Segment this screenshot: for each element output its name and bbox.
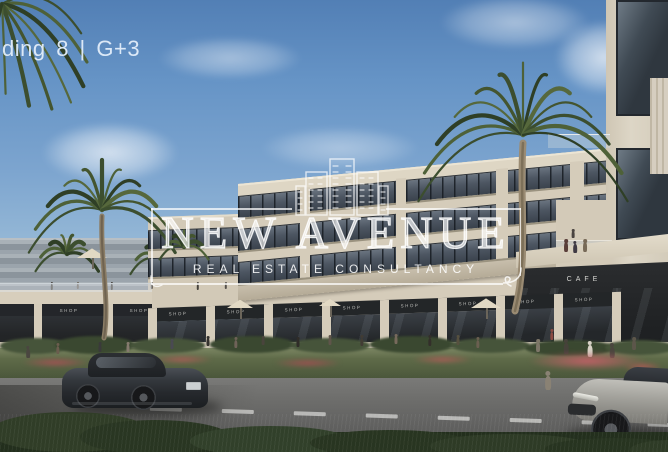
person-body bbox=[476, 340, 479, 348]
person-body bbox=[360, 338, 363, 346]
cloud bbox=[130, 28, 330, 88]
palm-frond-corner bbox=[0, 0, 130, 140]
coupe-rear-wheel bbox=[131, 385, 156, 410]
hedge-texture bbox=[0, 414, 668, 452]
person-body bbox=[206, 338, 209, 346]
shrub bbox=[370, 336, 455, 353]
person-figure bbox=[328, 335, 332, 345]
person-body bbox=[632, 340, 636, 350]
person-figure bbox=[476, 337, 480, 348]
person-figure bbox=[360, 335, 364, 346]
person-figure bbox=[261, 336, 264, 345]
person-figure bbox=[456, 335, 460, 345]
person-figure bbox=[234, 337, 238, 348]
person-body bbox=[225, 284, 227, 289]
facade-pier bbox=[396, 178, 406, 269]
person-body bbox=[394, 336, 397, 344]
person-body bbox=[428, 338, 431, 346]
person-figure bbox=[550, 329, 554, 340]
coupe-cabin bbox=[88, 353, 166, 377]
exterior-building-render: CAFE SHOPSHOP SHOPSHOPSHOPSHOPSHOPSHOPSH… bbox=[0, 0, 668, 452]
watermark-flourish bbox=[495, 266, 529, 292]
person-body bbox=[545, 376, 551, 390]
person-figure bbox=[296, 337, 300, 347]
license-plate bbox=[186, 382, 201, 390]
person-figure bbox=[544, 371, 551, 390]
dark-sports-coupe bbox=[60, 352, 210, 416]
palm-tree-left bbox=[20, 140, 190, 350]
person-figure bbox=[206, 336, 210, 346]
person-body bbox=[296, 339, 299, 347]
person-body bbox=[456, 337, 459, 345]
coupe-window bbox=[96, 357, 156, 368]
tower-fluted-panel bbox=[650, 78, 668, 174]
flower-bed bbox=[400, 354, 485, 365]
person-figure bbox=[394, 334, 398, 344]
person-body bbox=[328, 337, 331, 345]
umbrella-pole bbox=[330, 306, 332, 317]
watermark-flourish-left bbox=[144, 276, 164, 292]
shrub bbox=[210, 336, 295, 353]
umbrella-pole bbox=[240, 308, 242, 319]
person-body bbox=[197, 284, 199, 290]
flower-bed bbox=[260, 357, 355, 369]
coupe-sill-highlight bbox=[72, 402, 192, 405]
person-figure bbox=[632, 337, 637, 350]
building-label: ding 8 | G+3 bbox=[2, 36, 140, 62]
person-body bbox=[262, 338, 265, 345]
shrub bbox=[450, 338, 530, 353]
person-figure bbox=[196, 282, 199, 290]
new-avenue-buildings-logo-icon bbox=[294, 158, 390, 216]
person-body bbox=[550, 332, 553, 340]
person-body bbox=[234, 340, 237, 348]
person-figure bbox=[428, 335, 432, 346]
person-figure bbox=[225, 282, 228, 289]
